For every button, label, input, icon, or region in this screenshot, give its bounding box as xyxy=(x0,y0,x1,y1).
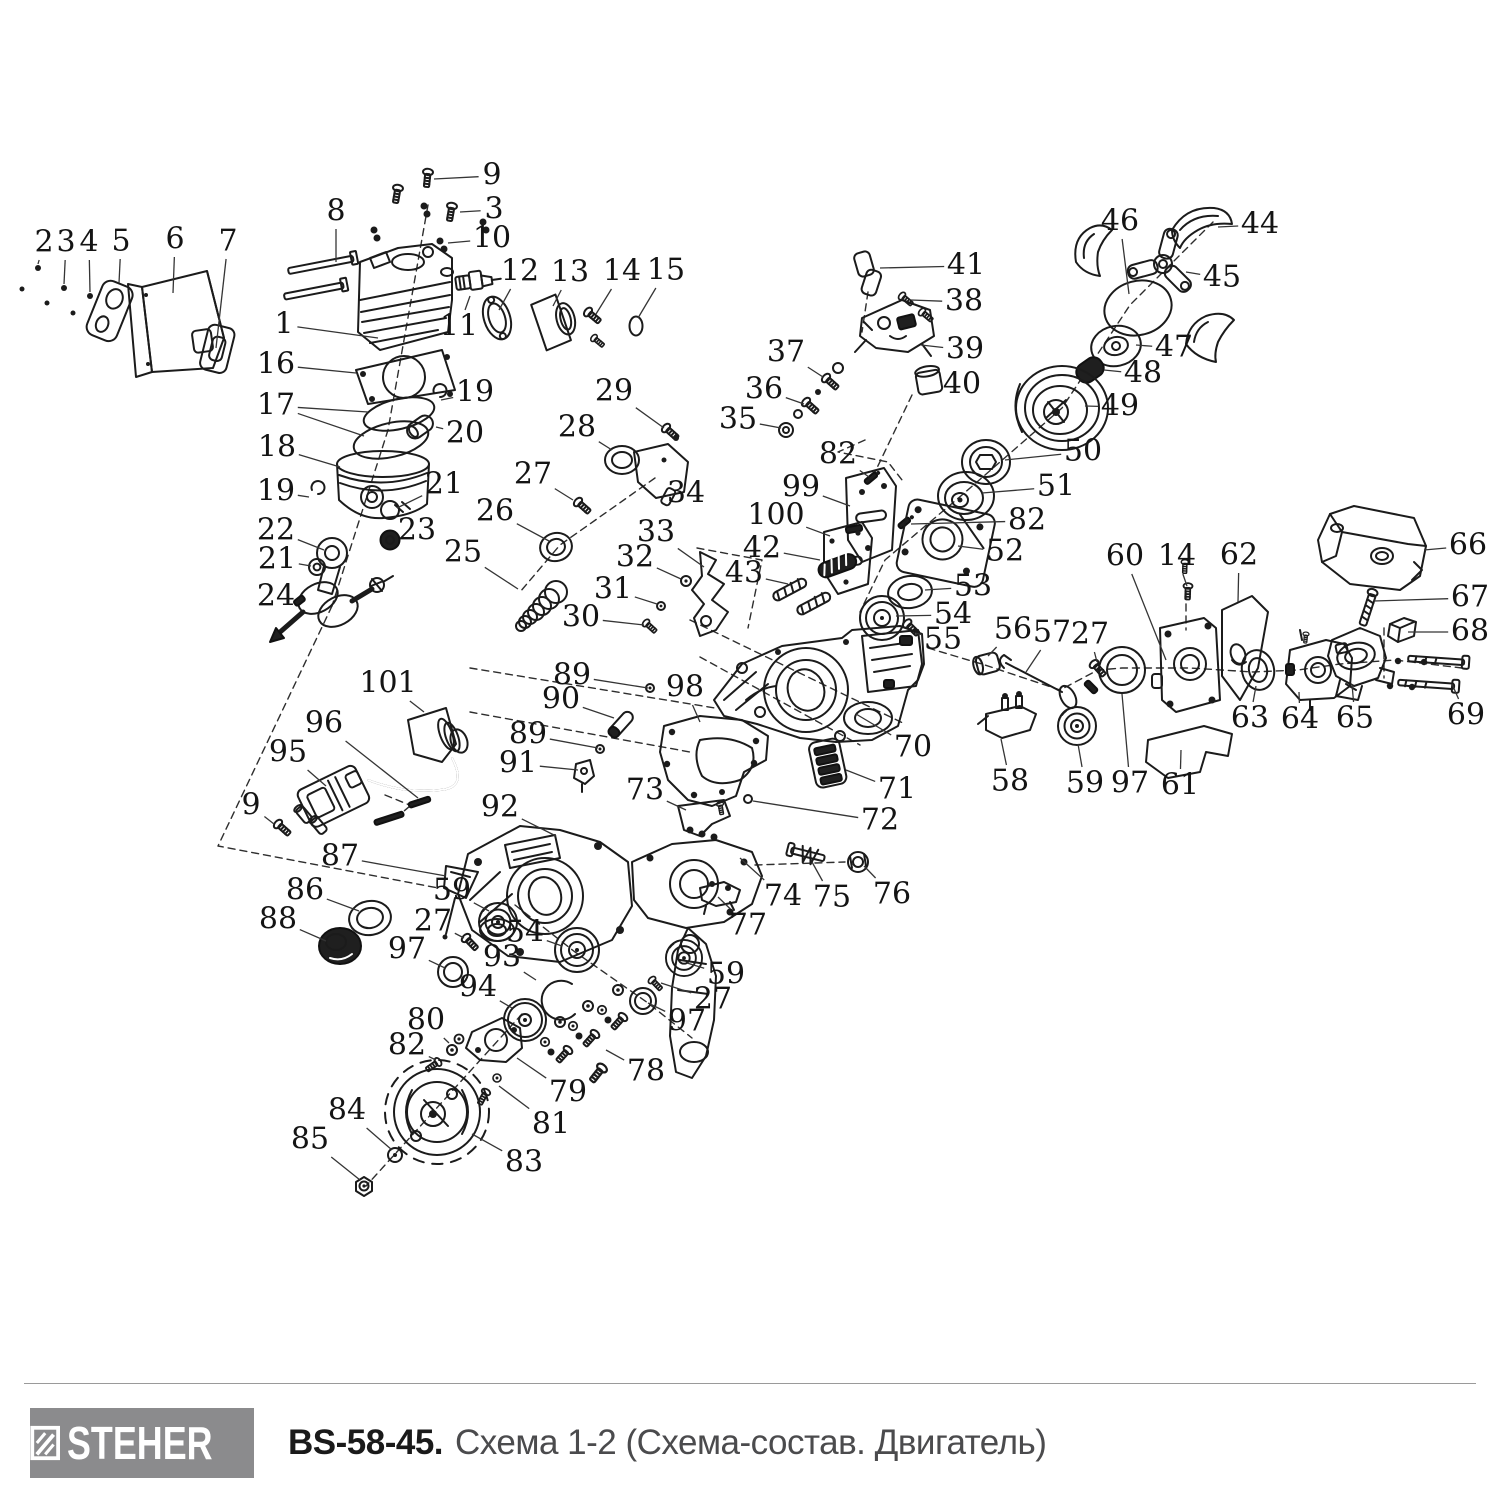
part-label-27: 27 xyxy=(514,459,552,489)
part-label-69: 69 xyxy=(1447,700,1485,730)
part-label-88: 88 xyxy=(259,904,297,934)
part-label-5: 5 xyxy=(111,226,130,256)
model-number: BS-58-45. xyxy=(288,1423,443,1463)
part-label-59: 59 xyxy=(1066,768,1104,798)
air-filter-base xyxy=(1318,506,1426,590)
part-label-74: 74 xyxy=(764,881,802,911)
part-label-63: 63 xyxy=(1231,703,1269,733)
part-label-41: 41 xyxy=(947,250,985,280)
part-label-93: 93 xyxy=(483,942,521,972)
part-label-30: 30 xyxy=(562,602,600,632)
part-label-8: 8 xyxy=(326,196,345,226)
crankcase-half-clutch-side xyxy=(714,626,924,742)
base-gasket xyxy=(356,350,455,404)
insulator-plate xyxy=(1222,596,1268,700)
steher-logo-icon xyxy=(30,1420,60,1466)
tensioner-bracket xyxy=(678,800,730,841)
part-label-90: 90 xyxy=(542,684,580,714)
throttle-bracket xyxy=(978,691,1036,738)
part-label-17: 17 xyxy=(257,390,295,420)
part-label-6: 6 xyxy=(165,224,184,254)
part-label-64: 64 xyxy=(1281,704,1319,734)
part-label-94: 94 xyxy=(459,972,497,1002)
part-label-39: 39 xyxy=(946,334,984,364)
part-label-24: 24 xyxy=(257,581,295,611)
part-label-9: 9 xyxy=(482,160,501,190)
brand-name: STEHER xyxy=(67,1416,213,1470)
spark-plug xyxy=(455,268,502,292)
part-label-7: 7 xyxy=(218,226,237,256)
diagram-caption: BS-58-45. Схема 1-2 (Схема-состав. Двига… xyxy=(288,1408,1046,1478)
part-label-23: 23 xyxy=(398,515,436,545)
spark-plug-boot xyxy=(368,708,471,791)
fuel-vent xyxy=(574,760,594,792)
part-label-91: 91 xyxy=(499,748,537,778)
part-label-101: 101 xyxy=(359,668,416,698)
part-label-36: 36 xyxy=(745,374,783,404)
part-label-66: 66 xyxy=(1449,530,1487,560)
footer-divider xyxy=(24,1383,1476,1384)
part-label-60: 60 xyxy=(1106,541,1144,571)
part-label-49: 49 xyxy=(1101,391,1139,421)
part-label-40: 40 xyxy=(943,369,981,399)
part-label-82: 82 xyxy=(819,439,857,469)
clutch-group xyxy=(860,208,1234,640)
part-label-79: 79 xyxy=(549,1077,587,1107)
clutch-cup xyxy=(938,472,994,520)
part-label-98: 98 xyxy=(666,672,704,702)
part-label-92: 92 xyxy=(481,792,519,822)
spacer-block xyxy=(1388,618,1416,642)
flywheel-nut xyxy=(356,1177,372,1196)
part-label-10: 10 xyxy=(473,223,511,253)
coil-screws xyxy=(372,796,432,825)
part-label-95: 95 xyxy=(269,737,307,767)
steher-logo: STEHER xyxy=(30,1408,254,1478)
part-label-18: 18 xyxy=(258,432,296,462)
part-label-3: 3 xyxy=(56,227,75,257)
part-label-81: 81 xyxy=(532,1109,570,1139)
ignition-coil xyxy=(293,764,371,836)
exhaust-gasket xyxy=(199,323,236,374)
part-label-59: 59 xyxy=(433,875,471,905)
part-label-43: 43 xyxy=(725,558,763,588)
parts-diagram-page: 1234567893101112131415161718192221241920… xyxy=(0,0,1500,1500)
part-label-97: 97 xyxy=(1111,768,1149,798)
oil-pump-cover xyxy=(1152,618,1220,712)
part-label-32: 32 xyxy=(616,542,654,572)
choke-rod xyxy=(1000,655,1080,711)
part-label-62: 62 xyxy=(1220,540,1258,570)
intake-boot xyxy=(530,291,580,351)
oiler-cap xyxy=(319,928,361,964)
part-label-50: 50 xyxy=(1064,436,1102,466)
part-label-14: 14 xyxy=(1158,541,1196,571)
part-label-2: 2 xyxy=(34,227,53,257)
part-label-15: 15 xyxy=(647,255,685,285)
part-label-38: 38 xyxy=(945,286,983,316)
part-label-29: 29 xyxy=(595,376,633,406)
part-label-67: 67 xyxy=(1451,582,1489,612)
part-label-76: 76 xyxy=(873,879,911,909)
part-label-48: 48 xyxy=(1124,358,1162,388)
part-label-75: 75 xyxy=(813,882,851,912)
part-label-100: 100 xyxy=(747,500,804,530)
part-label-58: 58 xyxy=(991,766,1029,796)
flywheel xyxy=(385,1060,489,1164)
chain-tensioner xyxy=(692,552,728,636)
part-label-19: 19 xyxy=(456,377,494,407)
part-label-46: 46 xyxy=(1101,206,1139,236)
part-label-87: 87 xyxy=(321,841,359,871)
part-label-55: 55 xyxy=(924,624,962,654)
plug-boot-elbow xyxy=(853,250,882,297)
part-label-28: 28 xyxy=(558,412,596,442)
crankcase-gasket xyxy=(660,716,768,806)
muffler-body xyxy=(128,271,224,377)
part-label-97: 97 xyxy=(388,934,426,964)
part-label-72: 72 xyxy=(861,805,899,835)
part-label-57: 57 xyxy=(1033,617,1071,647)
part-label-1: 1 xyxy=(274,309,293,339)
part-label-11: 11 xyxy=(440,311,478,341)
part-label-34: 34 xyxy=(667,478,705,508)
muffler-group xyxy=(20,265,236,377)
part-label-82: 82 xyxy=(388,1030,426,1060)
part-label-65: 65 xyxy=(1336,703,1374,733)
part-label-85: 85 xyxy=(291,1124,329,1154)
part-label-4: 4 xyxy=(79,227,98,257)
part-label-37: 37 xyxy=(767,337,805,367)
part-label-59: 59 xyxy=(707,959,745,989)
part-label-19: 19 xyxy=(257,476,295,506)
part-label-71: 71 xyxy=(878,774,916,804)
part-label-12: 12 xyxy=(501,256,539,286)
part-label-35: 35 xyxy=(719,404,757,434)
part-label-45: 45 xyxy=(1203,262,1241,292)
part-label-70: 70 xyxy=(894,732,932,762)
screw-set-78 xyxy=(541,985,629,1084)
part-label-21: 21 xyxy=(425,469,463,499)
part-label-25: 25 xyxy=(444,537,482,567)
part-label-77: 77 xyxy=(729,910,767,940)
part-label-14: 14 xyxy=(603,256,641,286)
piston xyxy=(337,451,429,518)
part-label-20: 20 xyxy=(446,418,484,448)
part-label-84: 84 xyxy=(328,1095,366,1125)
part-label-9: 9 xyxy=(241,790,260,820)
part-label-56: 56 xyxy=(994,614,1032,644)
part-label-27: 27 xyxy=(1071,619,1109,649)
part-label-96: 96 xyxy=(305,708,343,738)
part-label-61: 61 xyxy=(1161,770,1199,800)
pawl-plate xyxy=(466,1018,522,1062)
lock-nut xyxy=(848,852,868,872)
rubber-buffer xyxy=(808,737,848,788)
part-label-44: 44 xyxy=(1241,209,1279,239)
needle-bearing xyxy=(962,440,1010,484)
part-label-13: 13 xyxy=(551,257,589,287)
part-label-21: 21 xyxy=(258,544,296,574)
part-label-68: 68 xyxy=(1451,616,1489,646)
part-label-16: 16 xyxy=(257,349,295,379)
part-label-82: 82 xyxy=(1008,505,1046,535)
part-label-52: 52 xyxy=(986,536,1024,566)
part-label-51: 51 xyxy=(1037,471,1075,501)
part-label-78: 78 xyxy=(627,1056,665,1086)
part-label-73: 73 xyxy=(626,775,664,805)
diagram-subtitle: Схема 1-2 (Схема-состав. Двигатель) xyxy=(455,1423,1046,1463)
cylinder xyxy=(358,244,453,350)
part-label-26: 26 xyxy=(476,496,514,526)
part-label-83: 83 xyxy=(505,1147,543,1177)
